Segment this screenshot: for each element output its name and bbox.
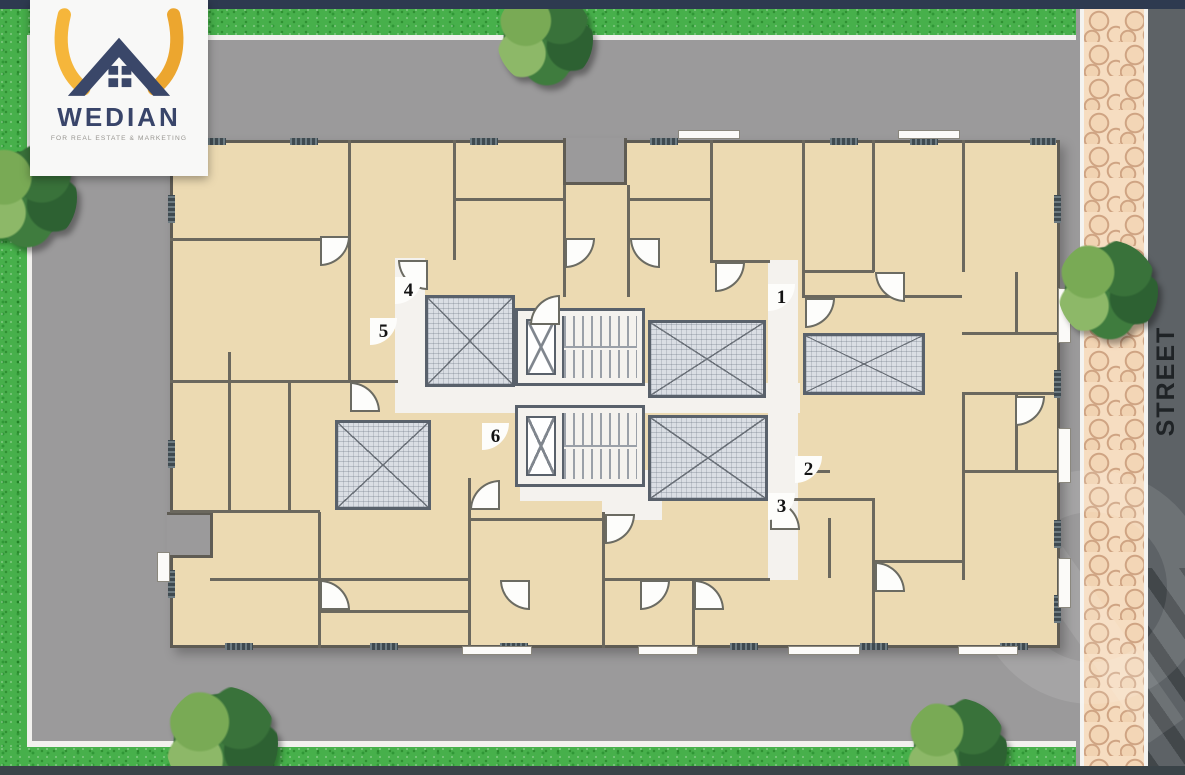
window-segment [830,138,858,145]
balcony [157,552,170,582]
interior-wall [288,380,291,512]
window-segment [730,643,758,650]
street-label: STREET [1148,321,1184,441]
window-segment [225,643,253,650]
balcony [788,646,860,655]
balcony [678,130,740,139]
interior-wall [627,198,712,201]
light-shaft [648,320,766,398]
window-segment [290,138,318,145]
light-shaft [425,295,515,387]
tree [497,0,593,86]
brand-logo-card: WEDIAN FOR REAL ESTATE & MARKETING [30,0,208,176]
balcony [638,646,698,655]
brand-name: WEDIAN [57,104,180,130]
interior-wall [170,380,398,383]
elevator-shaft [526,319,556,375]
window-segment [470,138,498,145]
window-segment [168,440,175,468]
window-segment [860,643,888,650]
interior-wall [228,352,231,512]
interior-wall [962,140,965,272]
window-segment [1054,195,1061,223]
light-shaft [335,420,431,510]
staircase [562,413,637,479]
elevator-shaft [526,416,556,476]
building-left-notch [167,512,213,558]
balcony [1058,428,1071,483]
light-shaft [803,333,925,395]
floor-plan [170,140,1060,648]
bottom-border-bar [0,766,1185,775]
window-segment [1030,138,1056,145]
light-shaft [648,415,768,501]
balcony [958,646,1018,655]
interior-wall [828,518,831,578]
site-plan-canvas: STREET WEDIAN FOR REAL ESTATE & MARKETIN… [0,0,1185,775]
stair-core [515,405,645,487]
tree [1058,240,1158,340]
window-segment [1054,370,1061,398]
interior-wall [802,270,874,273]
grass-strip-left [0,8,27,768]
balcony [1058,558,1071,608]
interior-wall [962,470,1057,473]
window-segment [370,643,398,650]
interior-wall [1015,272,1018,334]
window-segment [1054,520,1061,548]
interior-wall [802,140,805,297]
window-segment [168,195,175,223]
window-segment [910,138,938,145]
interior-wall [1015,332,1060,335]
interior-wall [710,140,713,262]
interior-wall [602,578,770,581]
tree [907,698,1007,775]
tree [166,686,278,775]
interior-wall [348,140,351,383]
interior-wall [210,578,470,581]
brand-tagline: FOR REAL ESTATE & MARKETING [51,135,187,142]
staircase [562,316,637,378]
wedian-logo-icon [39,6,199,110]
interior-wall [318,610,470,613]
window-segment [650,138,678,145]
interior-wall [170,510,320,513]
interior-wall [872,140,875,272]
building-top-notch [563,138,627,185]
interior-wall [962,392,1057,395]
interior-wall [872,560,964,563]
interior-wall [470,518,604,521]
balcony [898,130,960,139]
interior-wall [453,198,563,201]
interior-wall [962,392,965,580]
balcony [462,646,532,655]
